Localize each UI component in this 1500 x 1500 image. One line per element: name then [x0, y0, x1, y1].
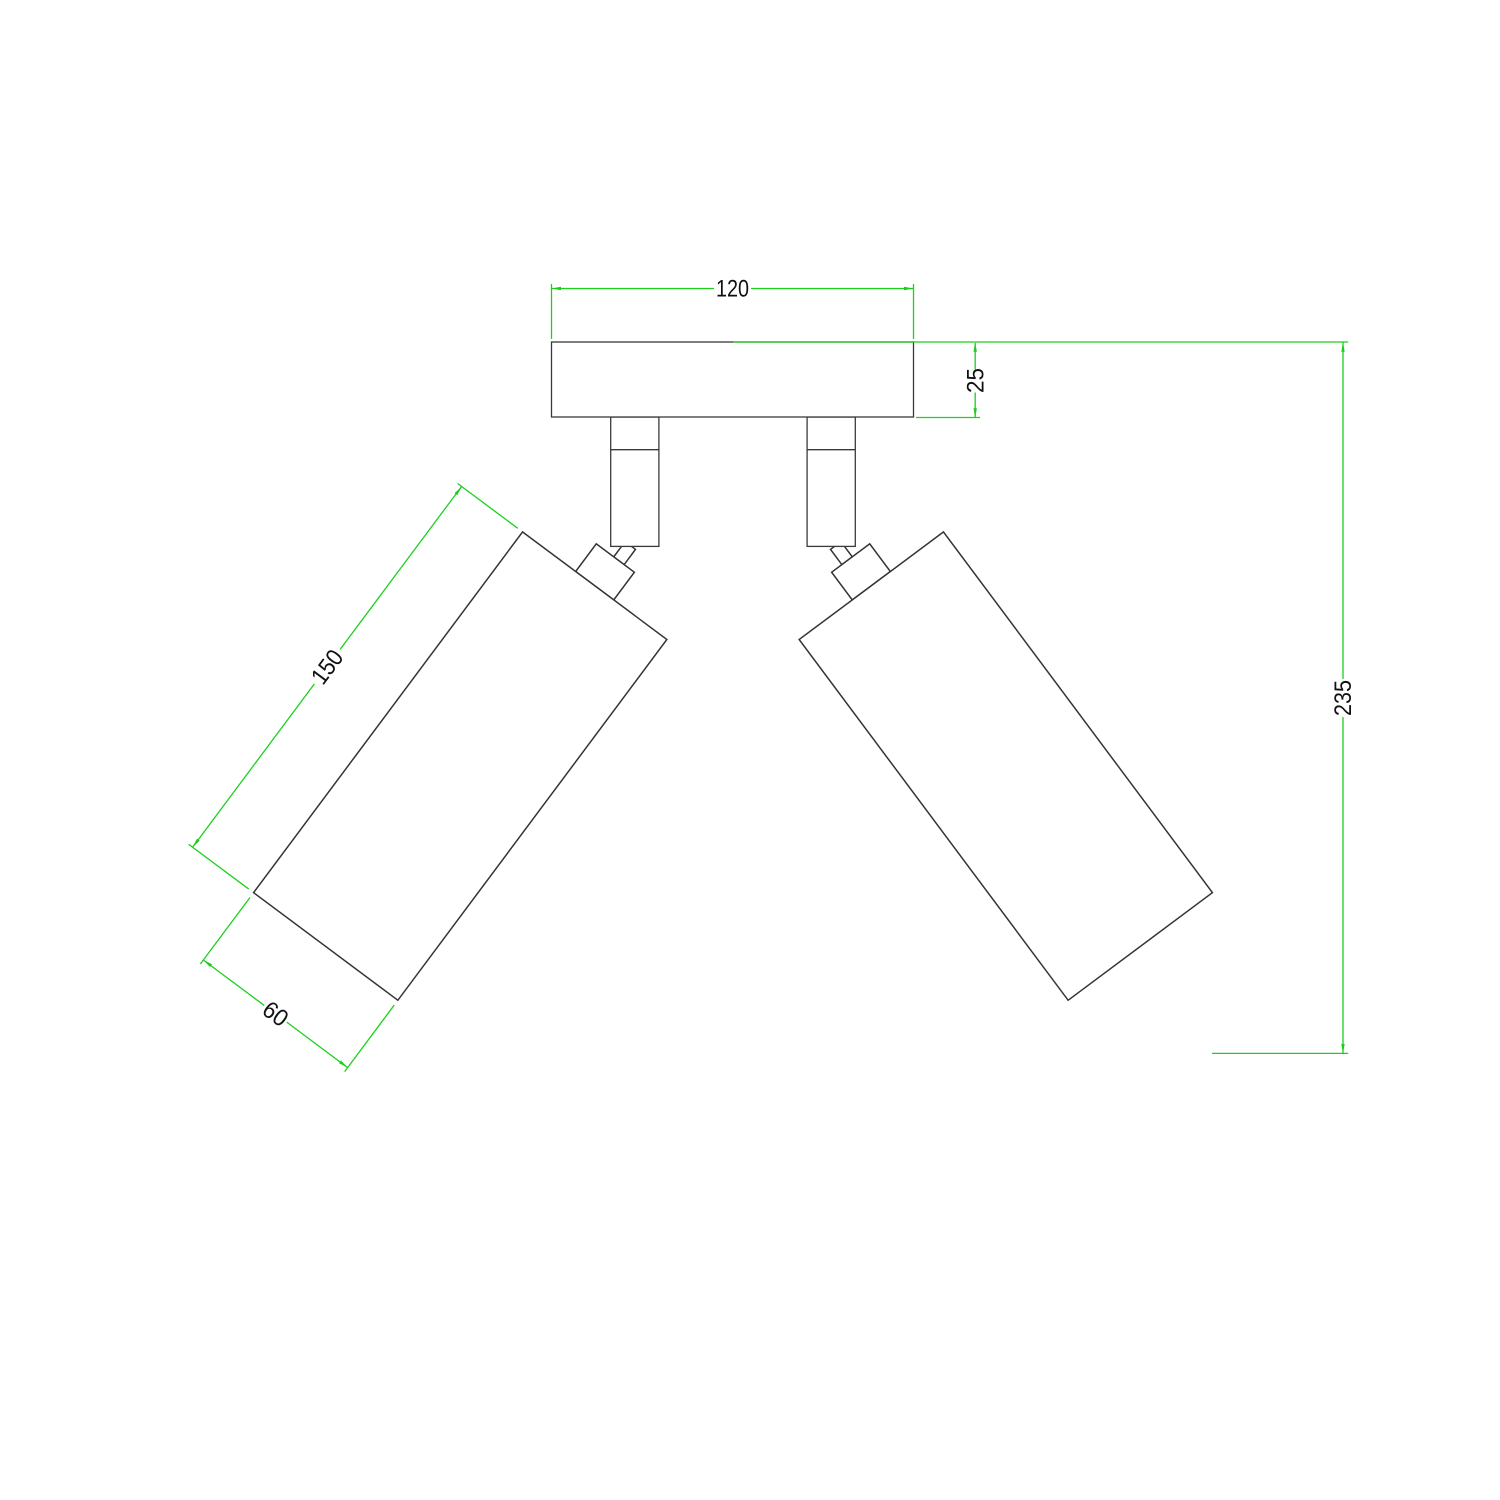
svg-text:120: 120: [716, 275, 749, 302]
svg-text:235: 235: [1330, 680, 1357, 716]
svg-text:25: 25: [962, 368, 989, 393]
